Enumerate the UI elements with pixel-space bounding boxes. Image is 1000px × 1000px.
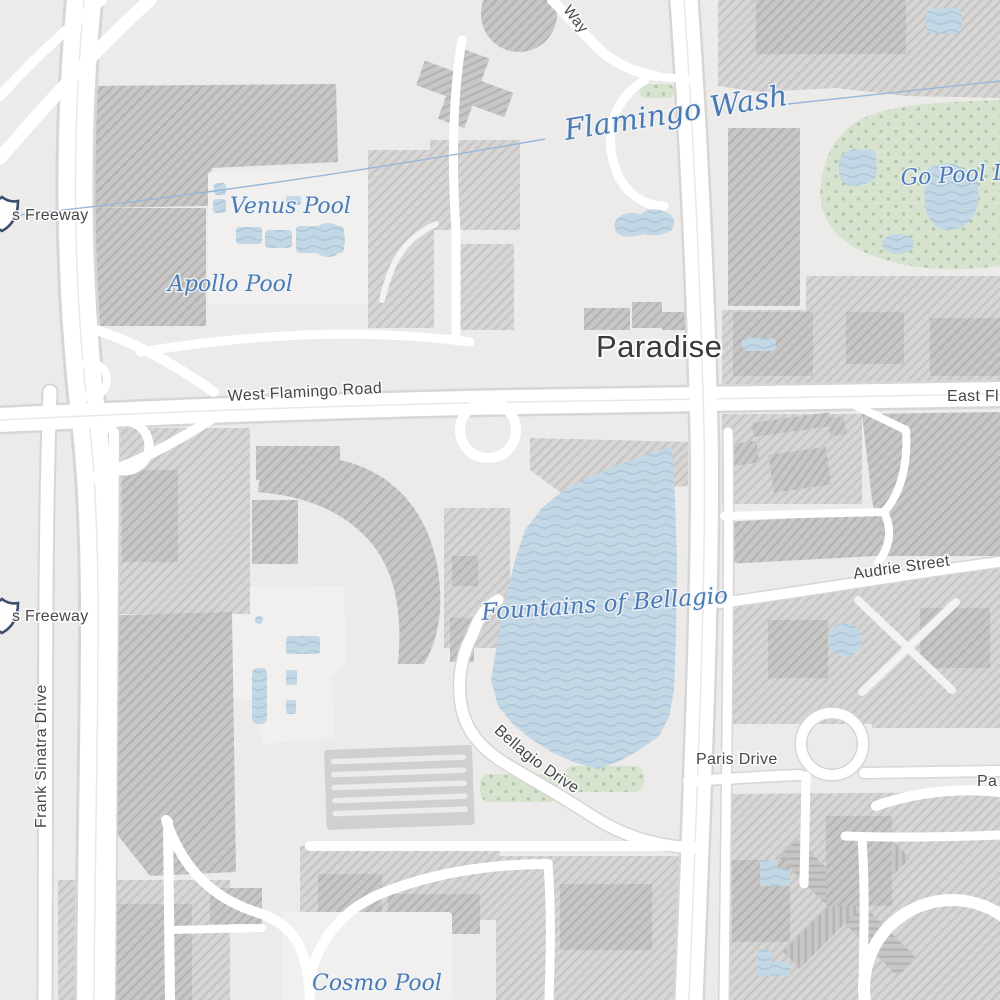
cosmo-pool-label: Cosmo Pool [312, 971, 442, 996]
go-pool-label: Go Pool D [900, 160, 1000, 191]
paradise-label: Paradise [596, 329, 722, 364]
freeway-label-south: s Freeway [12, 608, 89, 625]
frank-sinatra-drive-label: Frank Sinatra Drive [33, 684, 50, 828]
map-svg: s Freeway s Freeway Flamingo Wash Venus … [0, 0, 1000, 1000]
round-pool [828, 623, 862, 657]
parking-structure [324, 745, 475, 830]
map-canvas[interactable]: s Freeway s Freeway Flamingo Wash Venus … [0, 0, 1000, 1000]
paris-drive-label: Paris Drive [696, 751, 778, 768]
apollo-pool-label: Apollo Pool [166, 272, 293, 297]
east-flamingo-road-label: East Fl [947, 388, 999, 405]
venus-pool-label: Venus Pool [230, 194, 351, 219]
freeway-label-north: s Freeway [12, 207, 89, 224]
pa-road-label: Pa [977, 773, 997, 790]
